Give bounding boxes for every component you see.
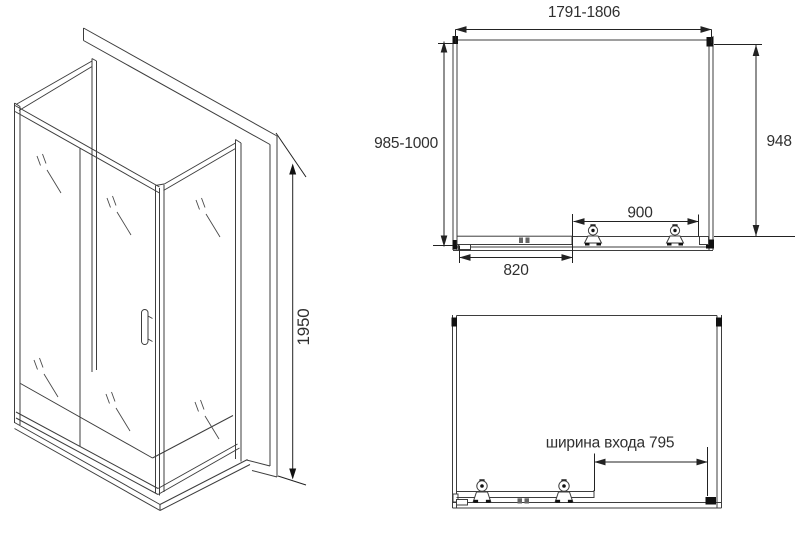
front-view-frame (452, 315, 723, 508)
right-side-panel (158, 140, 241, 495)
width-dimension: 1791-1806 (456, 4, 712, 43)
door-handle-icon (142, 310, 153, 345)
roller-icon (585, 224, 602, 245)
handle-mark (518, 498, 523, 503)
handle-mark (519, 238, 523, 244)
panel-dimension-label: 900 (627, 205, 653, 222)
width-dimension-label: 1791-1806 (548, 4, 620, 21)
height-dimension-label: 1950 (294, 308, 313, 345)
back-wall-panel (84, 28, 278, 477)
front-view: ширина входа 795 (452, 315, 723, 508)
door-dimension-label: 820 (503, 262, 529, 279)
handle-mark (525, 498, 530, 503)
entrance-dimension: ширина входа 795 (546, 435, 708, 497)
side-dimension-label: 948 (767, 133, 792, 150)
top-view: 1791-1806 985-1000 948 900 820 (374, 4, 795, 279)
wall-profile-tick (452, 318, 458, 327)
front-sliding-doors (15, 106, 164, 496)
side-dimension: 948 (714, 45, 795, 237)
glass-reflection-marks (34, 154, 220, 439)
isometric-view: 1950 (15, 28, 314, 511)
handle-mark (526, 238, 530, 244)
wall-profile-tick (716, 318, 722, 327)
depth-dimension-label: 985-1000 (374, 135, 438, 152)
depth-dimension: 985-1000 (374, 42, 453, 247)
wall-profile-tick (707, 37, 714, 47)
left-side-panel (15, 59, 97, 426)
roller-icon (667, 224, 684, 245)
shower-tray (15, 384, 251, 511)
drawing-canvas: 1950 (0, 0, 795, 550)
entrance-dimension-label: ширина входа 795 (546, 435, 675, 452)
top-view-frame (453, 36, 715, 251)
technical-drawing: 1950 (0, 0, 795, 550)
height-dimension: 1950 (276, 133, 313, 485)
corner-block (706, 497, 717, 505)
